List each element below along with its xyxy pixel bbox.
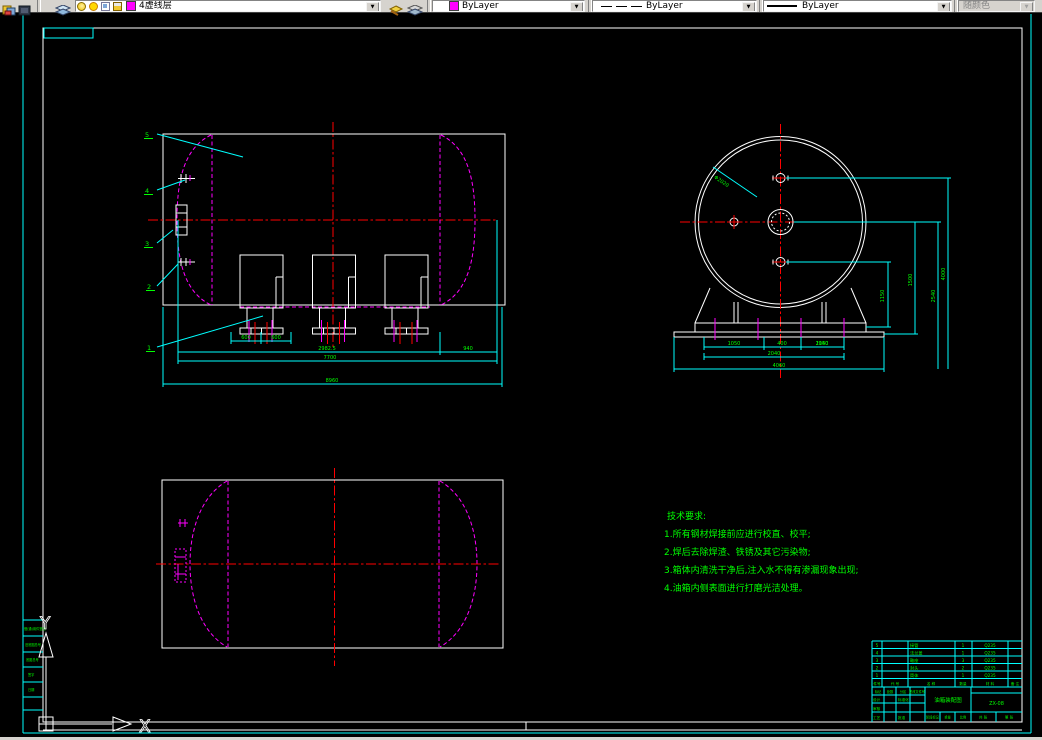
bom-cell: 3 (962, 658, 965, 663)
layer-plot-icon[interactable] (113, 2, 122, 11)
color-combo[interactable]: ByLayer ▼ (432, 0, 585, 12)
plotstyle-dropdown-arrow-icon: ▼ (1020, 2, 1033, 12)
sheet-frame (23, 14, 1031, 733)
sheet-cell: 共 张 (979, 715, 988, 720)
stage-cell: 重量 (944, 715, 951, 720)
bom-header-cell: 名 称 (927, 681, 936, 686)
linetype-combo[interactable]: ByLayer ▼ (592, 0, 757, 12)
bom-cell: 接管 (910, 642, 918, 649)
dimension-label: 1150 (816, 341, 829, 347)
layer-properties-manager-icon[interactable] (2, 1, 16, 12)
bom-cell: Q235 (984, 673, 996, 678)
dimension-label: 400 (777, 341, 787, 347)
layer-tool-icon[interactable] (18, 1, 31, 12)
bom-header-cell: 材 料 (986, 681, 995, 686)
saddle-support (313, 255, 356, 344)
linetype-preview (631, 6, 642, 7)
border-strip-label: 签字 (28, 672, 34, 677)
bom-cell: Q235 (984, 643, 996, 648)
bom-cell: Q235 (984, 666, 996, 671)
drawing-title: 油箱装配图 (934, 696, 962, 704)
dimension-label: 8960 (326, 378, 339, 384)
current-color: ByLayer (462, 1, 499, 11)
layer-previous-icon[interactable] (407, 1, 423, 12)
balloon-4: 4 (145, 187, 149, 195)
dimension-label: 600 (271, 335, 281, 341)
bom-header-cell: 备 注 (1011, 681, 1020, 686)
bom-cell: 筒体 (910, 672, 919, 679)
bom-cell: 1 (962, 651, 965, 656)
lineweight-preview (767, 5, 797, 7)
sign-cell: 工艺 (873, 715, 881, 720)
bom-rows: 5 接管 1 Q235 4 法兰盖 1 Q235 3 鞍座 3 Q235 2 封… (876, 642, 996, 679)
bom-cell: 鞍座 (910, 657, 918, 664)
dimension-label: 4000 (941, 268, 947, 281)
notes-line: 4.油箱内侧表面进行打磨光洁处理。 (664, 582, 808, 594)
sign-cell: 审核 (873, 706, 881, 711)
balloon-5: 5 (145, 131, 149, 139)
dimension-label: 600 (241, 335, 251, 341)
dimension-label: 940 (463, 346, 473, 352)
saddle-support (385, 255, 428, 344)
sign-cell: 设计 (873, 697, 881, 702)
layer-color-swatch (126, 1, 136, 11)
bom-cell: 1 (876, 673, 879, 678)
bom-cell: 1 (962, 643, 965, 648)
layer-on-icon[interactable] (77, 2, 86, 11)
layer-combo[interactable]: 4虚线层 ▼ (75, 0, 381, 12)
plotstyle-combo: 随颜色 ▼ (958, 0, 1035, 12)
sign-cell: 批准 (898, 715, 906, 720)
sign-cell: 处数 (887, 689, 894, 694)
bom-cell: Q235 (984, 658, 996, 663)
current-linetype: ByLayer (646, 1, 683, 11)
notes-line: 3.箱体内清洗干净后,注入水不得有渗漏现象出现; (664, 564, 858, 576)
linetype-dropdown-arrow-icon[interactable]: ▼ (742, 2, 755, 12)
stage-cells: 阶段标记 重量 比例 共 张 第 张 (926, 715, 1013, 720)
lineweight-dropdown-arrow-icon[interactable]: ▼ (937, 2, 950, 12)
linetype-preview (601, 6, 612, 7)
bom-cell: 法兰盖 (910, 650, 923, 657)
end-view-support (674, 288, 884, 340)
make-object-layer-current-icon[interactable] (388, 1, 404, 12)
dimension-label: 7700 (324, 355, 337, 361)
toolbar-separator (427, 0, 431, 12)
front-view: 5 4 3 2 1 600 600 2982.5 940 7700 8960 (144, 122, 505, 387)
balloon-2: 2 (147, 283, 151, 291)
toolbar-separator (37, 0, 41, 12)
border-strip-label: 日期 (28, 687, 34, 692)
sign-cell: 标准化 (898, 697, 909, 702)
bom-cell: 2 (962, 666, 965, 671)
current-plotstyle: 随颜色 (963, 1, 990, 11)
bom-header-cell: 代 号 (891, 681, 900, 686)
balloon-3: 3 (145, 240, 149, 248)
object-properties-toolbar: 4虚线层 ▼ ByLayer ▼ ByLayer ▼ ByLayer ▼ (0, 0, 1042, 13)
ucs-y-label: Y (39, 614, 51, 634)
dimension-label: 1150 (880, 290, 886, 303)
bom-cell: 1 (962, 673, 965, 678)
title-block: 5 接管 1 Q235 4 法兰盖 1 Q235 3 鞍座 3 Q235 2 封… (872, 641, 1022, 722)
bom-header: 件号 代 号 名 称 数量 材 料 备 注 (873, 681, 1019, 686)
balloon-labels: 5 4 3 2 1 (144, 131, 155, 352)
dimension-label: 1500 (908, 274, 914, 287)
ucs-icon: Y X (39, 614, 151, 737)
bom-cell: 封头 (910, 665, 918, 672)
drawing-number: ZX-08 (989, 701, 1004, 707)
drawing-canvas[interactable]: 借(通)用件登记 旧底图总号 底图总号 签字 日期 Y X (0, 0, 1042, 740)
end-view: Φ2020 1050 400 2040 1150 2040 4060 1150 … (674, 124, 951, 378)
border-strip-label: 旧底图总号 (25, 642, 41, 647)
stage-cell: 比例 (960, 715, 966, 720)
layer-lock-icon[interactable] (101, 2, 110, 11)
dimension-label: 2040 (768, 351, 781, 357)
dimension-label: 2982.5 (318, 346, 336, 352)
bom-header-cell: 数量 (959, 681, 967, 686)
ucs-x-label: X (139, 717, 151, 737)
plan-view (156, 468, 503, 666)
bom-cell: Q235 (984, 651, 996, 656)
dimension-label: 1050 (728, 341, 741, 347)
notes-line: 2.焊后去除焊渣、铁锈及其它污染物; (664, 546, 811, 558)
sign-cell: 分区 (900, 689, 907, 694)
bom-cell: 3 (876, 658, 879, 663)
technical-notes: 技术要求: 1.所有钢材焊接前应进行校直、校平; 2.焊后去除焊渣、铁锈及其它污… (664, 510, 858, 594)
current-layer-name: 4虚线层 (139, 1, 172, 11)
balloon-1: 1 (147, 344, 151, 352)
color-dropdown-arrow-icon[interactable]: ▼ (570, 2, 583, 12)
layer-dropdown-arrow-icon[interactable]: ▼ (366, 2, 379, 12)
sign-cell: 标记 (875, 689, 882, 694)
border-strip-label: 底图总号 (26, 657, 39, 662)
end-view-dimensions: 1050 400 2040 1150 2040 4060 1150 1500 2… (674, 178, 951, 372)
plan-view-fittings (175, 519, 188, 582)
linetype-preview (616, 6, 627, 7)
dimension-label: 2540 (931, 290, 937, 303)
bom-cell: 4 (876, 651, 879, 656)
notes-line: 1.所有钢材焊接前应进行校直、校平; (664, 528, 811, 540)
stage-cell: 阶段标记 (926, 715, 940, 720)
color-swatch (449, 1, 459, 11)
bom-header-cell: 件号 (873, 681, 881, 686)
dimension-label: 4060 (773, 363, 786, 369)
sheet-cell: 第 张 (1005, 715, 1014, 720)
layer-freeze-icon[interactable] (89, 2, 98, 11)
current-lineweight: ByLayer (802, 1, 839, 11)
sign-cell: 更改文件号 (909, 689, 925, 694)
bom-cell: 2 (876, 666, 879, 671)
lineweight-combo[interactable]: ByLayer ▼ (763, 0, 952, 12)
bom-cell: 5 (876, 643, 879, 648)
layers-icon[interactable] (55, 1, 71, 12)
saddle-support (240, 255, 283, 344)
notes-title: 技术要求: (667, 510, 706, 522)
signature-grid: 标记 处数 分区 更改文件号 设计 标准化 审核 工艺 批准 (873, 689, 925, 720)
